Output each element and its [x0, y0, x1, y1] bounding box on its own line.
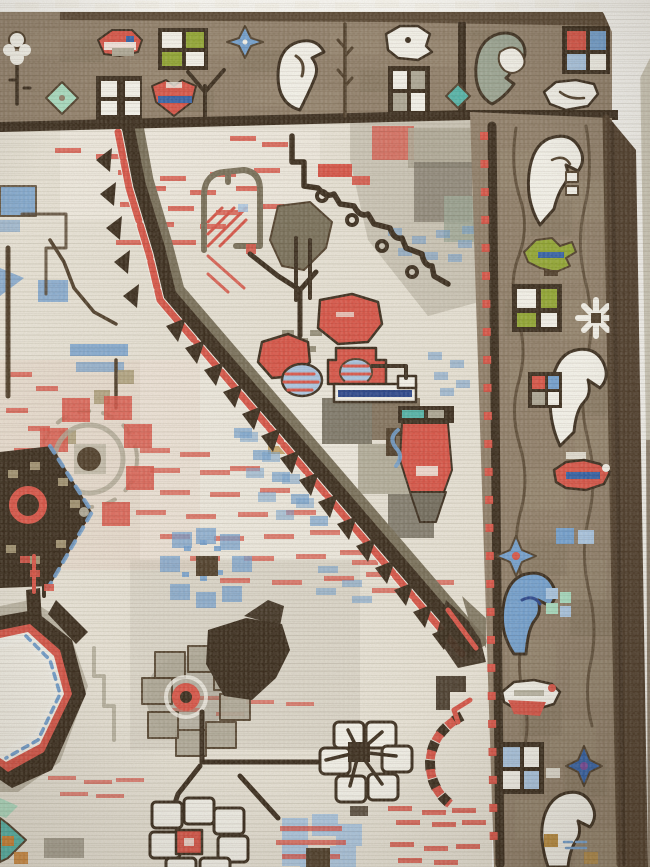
texture-layers — [0, 0, 650, 867]
vignette — [0, 0, 650, 867]
rug-photo-svg — [0, 0, 650, 867]
rug-photograph — [0, 0, 650, 867]
